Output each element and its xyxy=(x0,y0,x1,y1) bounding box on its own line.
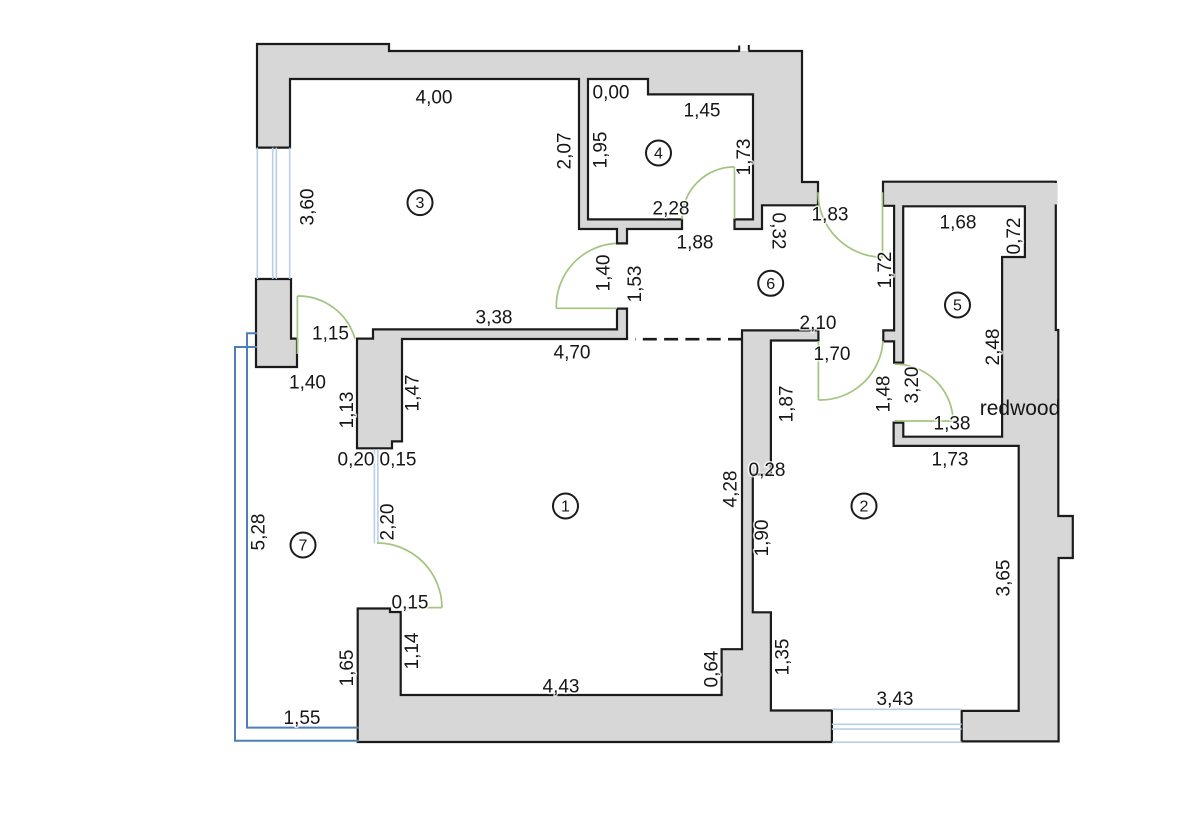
svg-text:1,55: 1,55 xyxy=(284,708,321,729)
svg-text:1,13: 1,13 xyxy=(337,392,358,429)
svg-text:1,70: 1,70 xyxy=(814,344,851,365)
svg-text:redwood: redwood xyxy=(980,397,1061,420)
svg-text:1,15: 1,15 xyxy=(312,324,349,345)
svg-text:1,72: 1,72 xyxy=(875,252,896,289)
svg-text:3,38: 3,38 xyxy=(476,308,513,329)
svg-text:7: 7 xyxy=(299,538,308,555)
svg-text:0,72: 0,72 xyxy=(1004,218,1025,255)
svg-text:0,00: 0,00 xyxy=(593,83,630,104)
svg-text:5: 5 xyxy=(953,298,962,315)
svg-text:3,43: 3,43 xyxy=(877,689,914,710)
svg-text:2,20: 2,20 xyxy=(378,504,399,541)
svg-text:1,47: 1,47 xyxy=(403,375,424,412)
svg-text:6: 6 xyxy=(766,276,775,293)
svg-text:1,40: 1,40 xyxy=(289,373,326,394)
svg-text:1,65: 1,65 xyxy=(337,650,358,687)
svg-text:1,73: 1,73 xyxy=(734,139,755,176)
svg-text:4,00: 4,00 xyxy=(416,88,453,109)
svg-text:1,45: 1,45 xyxy=(684,101,721,122)
svg-text:2,48: 2,48 xyxy=(983,329,1004,366)
svg-text:1,90: 1,90 xyxy=(752,520,773,557)
svg-text:2,07: 2,07 xyxy=(555,133,576,170)
svg-text:2: 2 xyxy=(860,499,869,516)
svg-text:3,60: 3,60 xyxy=(298,189,319,226)
svg-text:1,14: 1,14 xyxy=(402,632,423,669)
svg-text:1,38: 1,38 xyxy=(934,414,971,435)
svg-text:4,70: 4,70 xyxy=(554,343,591,364)
svg-text:1,88: 1,88 xyxy=(677,233,714,254)
svg-text:1,95: 1,95 xyxy=(591,132,612,169)
svg-text:0,15: 0,15 xyxy=(392,593,429,614)
svg-text:1,35: 1,35 xyxy=(773,639,794,676)
svg-text:1,40: 1,40 xyxy=(594,255,615,292)
svg-text:4,43: 4,43 xyxy=(543,677,580,698)
svg-text:3: 3 xyxy=(416,195,425,212)
svg-text:0,28: 0,28 xyxy=(749,460,786,481)
svg-text:0,32: 0,32 xyxy=(768,213,789,250)
svg-text:0,15: 0,15 xyxy=(380,450,417,471)
svg-text:1,87: 1,87 xyxy=(777,386,798,423)
svg-text:1,83: 1,83 xyxy=(812,205,849,226)
svg-text:4: 4 xyxy=(654,146,663,163)
svg-text:1,48: 1,48 xyxy=(874,376,895,413)
svg-text:3,20: 3,20 xyxy=(902,367,923,404)
svg-text:3,65: 3,65 xyxy=(994,560,1015,597)
svg-text:2,10: 2,10 xyxy=(800,313,837,334)
svg-text:1,53: 1,53 xyxy=(625,266,646,303)
svg-text:0,64: 0,64 xyxy=(702,650,723,687)
svg-text:1: 1 xyxy=(561,499,570,516)
svg-text:1,73: 1,73 xyxy=(932,450,969,471)
svg-text:4,28: 4,28 xyxy=(721,471,742,508)
svg-text:0,20: 0,20 xyxy=(338,450,375,471)
svg-text:1,68: 1,68 xyxy=(940,213,977,234)
svg-text:2,28: 2,28 xyxy=(653,199,690,220)
svg-text:5,28: 5,28 xyxy=(249,514,270,551)
